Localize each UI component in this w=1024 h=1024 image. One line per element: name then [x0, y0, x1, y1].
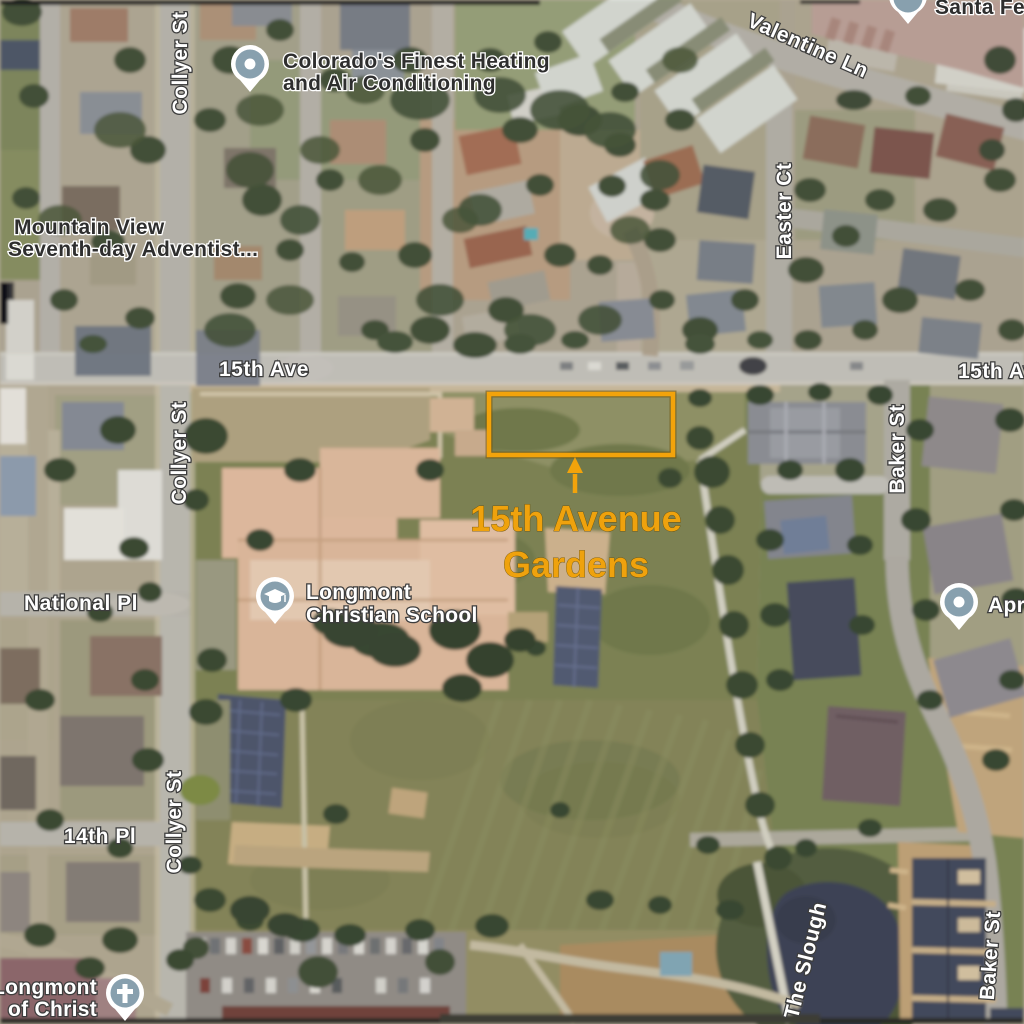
- svg-text:Collyer St: Collyer St: [169, 11, 192, 114]
- svg-text:of Christ: of Christ: [8, 998, 97, 1021]
- svg-text:15th Av: 15th Av: [958, 360, 1024, 383]
- svg-text:Longmont: Longmont: [0, 976, 97, 999]
- svg-text:15th Ave: 15th Ave: [219, 358, 309, 381]
- svg-text:Colorado's Finest Heating: Colorado's Finest Heating: [283, 50, 550, 73]
- svg-text:Christian School: Christian School: [306, 604, 478, 627]
- svg-text:14th Pl: 14th Pl: [64, 825, 136, 848]
- svg-text:Longmont: Longmont: [306, 581, 411, 604]
- svg-text:Easter Ct: Easter Ct: [773, 163, 796, 260]
- svg-text:Gardens: Gardens: [503, 544, 649, 585]
- svg-text:Apr: Apr: [988, 594, 1024, 617]
- svg-text:Santa Fe: Santa Fe: [935, 0, 1024, 19]
- svg-text:Collyer St: Collyer St: [163, 770, 186, 873]
- svg-text:Mountain View: Mountain View: [14, 216, 165, 239]
- svg-text:Collyer St: Collyer St: [168, 401, 191, 504]
- svg-text:15th Avenue: 15th Avenue: [470, 498, 681, 539]
- svg-text:National Pl: National Pl: [24, 592, 138, 615]
- svg-text:Seventh-day Adventist...: Seventh-day Adventist...: [8, 238, 258, 261]
- svg-text:and Air Conditioning: and Air Conditioning: [283, 72, 496, 95]
- svg-text:Baker St: Baker St: [886, 404, 909, 493]
